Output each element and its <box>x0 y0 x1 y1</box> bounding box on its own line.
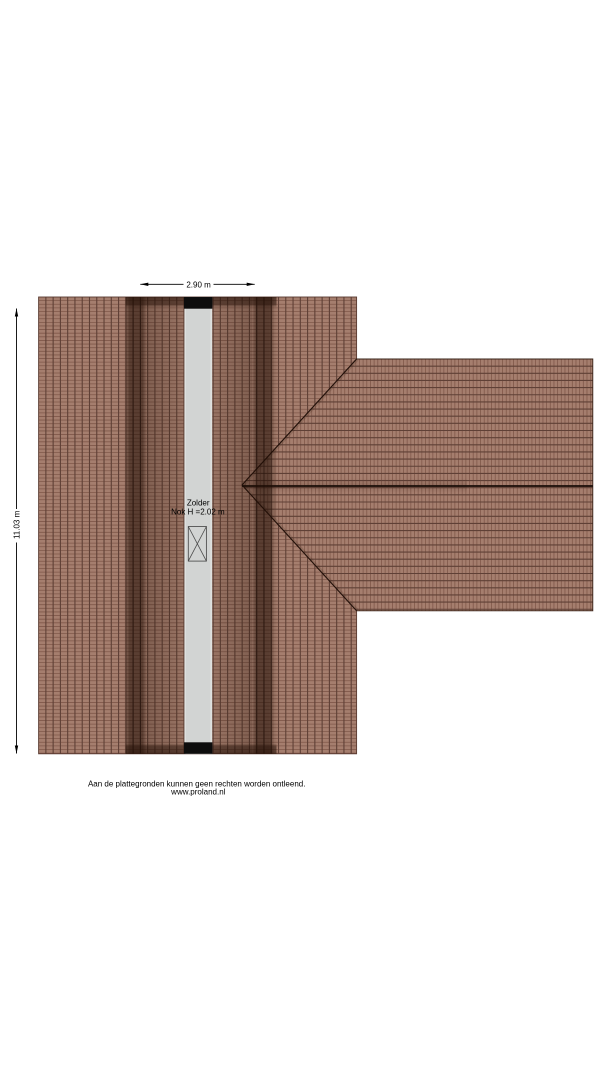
svg-text:www.proland.nl: www.proland.nl <box>170 788 225 797</box>
svg-text:2.90 m: 2.90 m <box>186 280 211 289</box>
svg-text:11.03 m: 11.03 m <box>13 510 22 539</box>
svg-text:Nok H =2.02 m: Nok H =2.02 m <box>171 507 225 516</box>
svg-text:Zolder: Zolder <box>187 498 210 507</box>
